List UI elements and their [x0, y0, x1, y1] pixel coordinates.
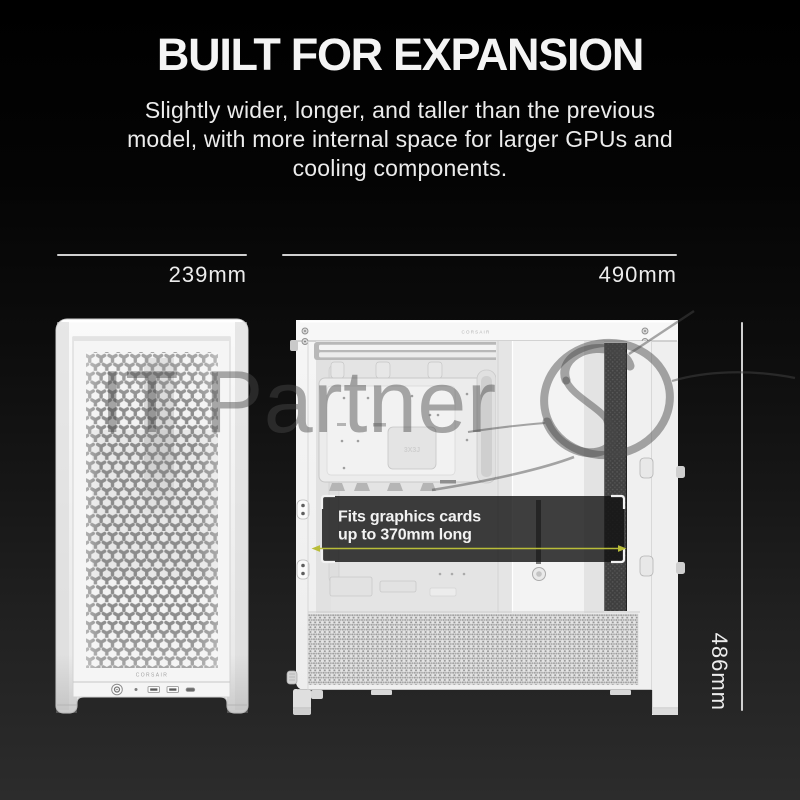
svg-text:IT Partner: IT Partner — [100, 352, 497, 451]
svg-text:Fits graphics cards: Fits graphics cards — [338, 509, 481, 526]
svg-text:CORSAIR: CORSAIR — [462, 330, 491, 335]
svg-text:up to 370mm long: up to 370mm long — [338, 527, 472, 544]
svg-text:CORSAIR: CORSAIR — [136, 673, 169, 679]
